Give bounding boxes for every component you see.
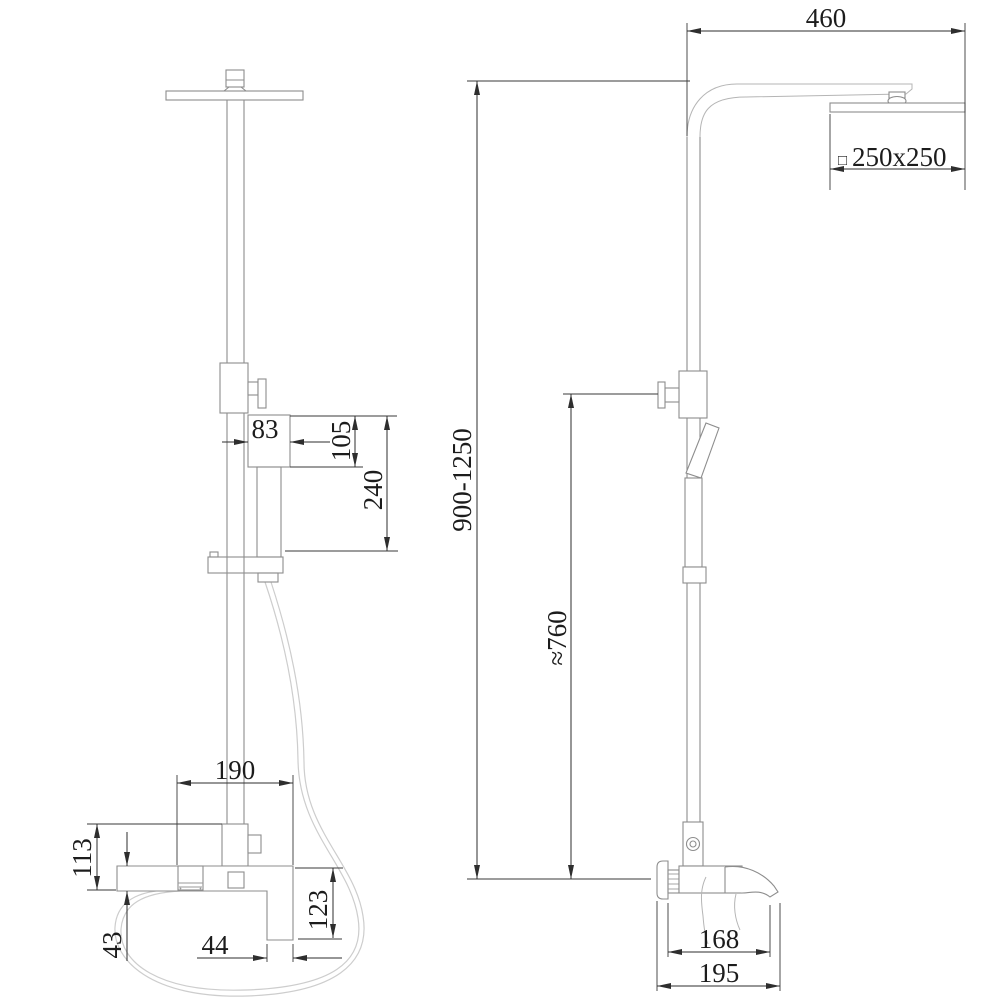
dim-spout-drop-label: 123 xyxy=(303,890,333,931)
slider-block-front xyxy=(220,363,248,413)
wall-bracket xyxy=(657,861,668,899)
drawing-svg: 460 □ 250x250 900-1250 ≈760 83 105 240 1… xyxy=(0,0,1000,1000)
slider-knob-front xyxy=(248,382,258,395)
hand-shower-handle-front xyxy=(257,467,281,557)
dim-inlet-height-label: 113 xyxy=(67,838,97,878)
mixer-body-front xyxy=(117,866,293,940)
dim-handset-length-label: 240 xyxy=(358,470,388,511)
dim-head-size-label: 250x250 xyxy=(852,142,947,172)
rain-shower-head-front xyxy=(166,91,303,100)
hose-connector xyxy=(258,573,278,582)
dim-mixer-depth-label: 195 xyxy=(699,958,740,988)
slide-bar xyxy=(208,557,283,573)
dim-spout-reach-label: 168 xyxy=(699,924,740,954)
pipe-clamp xyxy=(683,567,706,583)
dim-arm-reach-label: 460 xyxy=(806,3,847,33)
ceiling-connector xyxy=(224,70,246,91)
dimensions: 460 □ 250x250 900-1250 ≈760 83 105 240 1… xyxy=(67,3,965,991)
dim-total-height-label: 900-1250 xyxy=(447,428,477,532)
dim-handset-width-label: 83 xyxy=(252,414,279,444)
square-symbol: □ xyxy=(838,153,847,169)
side-view xyxy=(657,84,965,944)
dim-handset-head-label: 105 xyxy=(326,421,356,462)
dim-spout-width-label: 44 xyxy=(202,930,230,960)
dim-mixer-width-label: 190 xyxy=(215,755,256,785)
hand-shower-handle-side xyxy=(685,478,702,567)
front-view xyxy=(115,70,364,996)
slider-block-side xyxy=(679,371,707,418)
technical-drawing: 460 □ 250x250 900-1250 ≈760 83 105 240 1… xyxy=(0,0,1000,1000)
dim-hand-shower-height-label: ≈760 xyxy=(542,610,572,665)
wall-connector-hatch xyxy=(668,870,679,893)
hand-shower-head-side xyxy=(686,423,719,478)
mixer-knob-front xyxy=(248,835,261,853)
shower-hose-inner xyxy=(115,582,364,996)
slider-knob-side xyxy=(665,388,679,402)
dim-body-height-label: 43 xyxy=(97,932,127,959)
rain-shower-head-side xyxy=(830,103,965,112)
mixer-inlet-block-front xyxy=(222,824,248,866)
